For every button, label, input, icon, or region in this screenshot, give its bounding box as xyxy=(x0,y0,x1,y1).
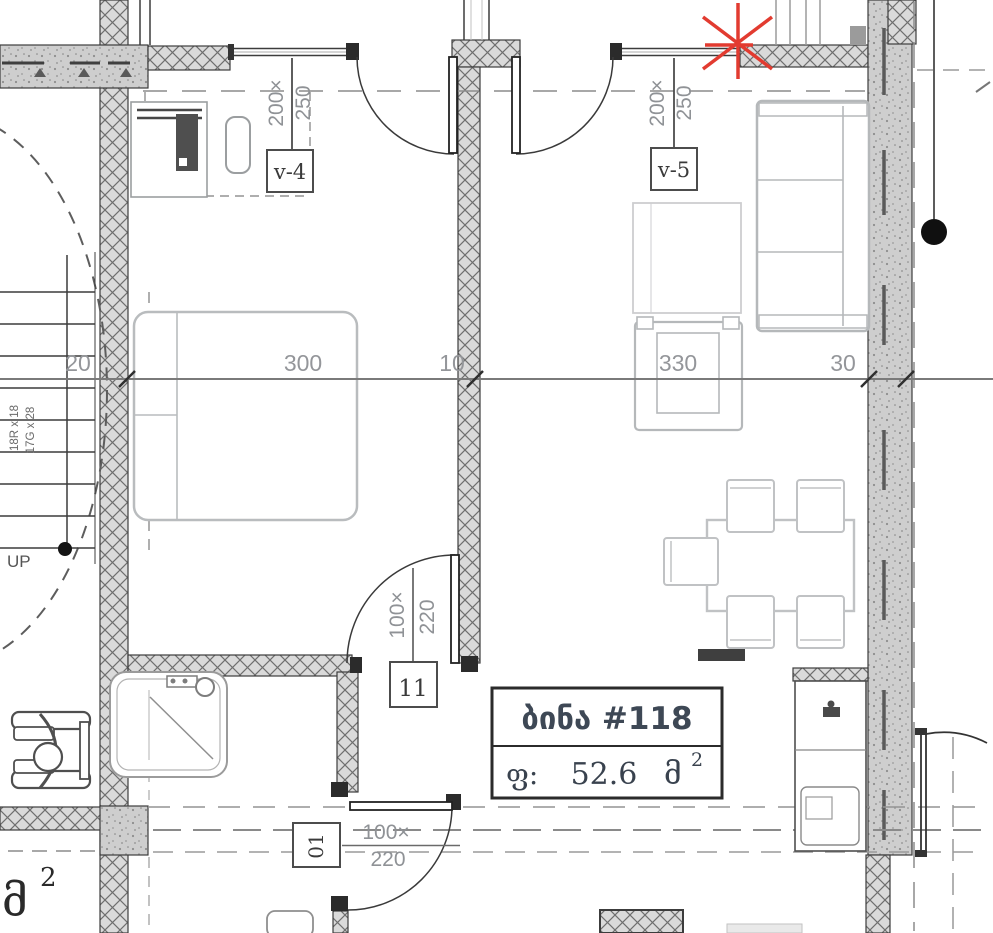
dim-10: 10 xyxy=(439,350,465,376)
door11-size-h: 220 xyxy=(416,599,439,634)
shower-tray xyxy=(110,672,227,777)
wheelchair-symbol xyxy=(12,712,90,788)
wall-bathroom-right xyxy=(337,672,358,792)
apartment-label: ბინა #118 ფ: 52.6 მ 2 xyxy=(492,688,722,798)
desk-chair xyxy=(226,117,250,173)
kitchen-wall-band xyxy=(793,668,868,681)
stair-direction-dot xyxy=(58,542,72,556)
v4-size-h: 250 xyxy=(292,85,315,120)
v5-size-h: 250 xyxy=(673,85,696,120)
stair-up-label: UP xyxy=(7,552,31,571)
reference-dot xyxy=(921,0,947,245)
door-tag-11: 100× 220 11 xyxy=(386,568,439,707)
door01-tag-label: 01 xyxy=(304,833,328,858)
window-tag-v5: 200× 250 v-5 xyxy=(646,58,697,190)
bed xyxy=(134,312,357,520)
door11-size-w: 100× xyxy=(386,591,409,638)
wall-bottom-center xyxy=(600,910,683,933)
wall-right-concrete xyxy=(868,0,912,855)
balcony-door xyxy=(915,728,987,857)
fixture-below xyxy=(267,911,313,933)
bedroom-furniture xyxy=(131,92,357,520)
stair-swing-dashed-arc xyxy=(0,113,107,667)
stair-note-2: 17G x 28 xyxy=(25,407,37,454)
v5-tag-label: v-5 xyxy=(657,158,690,182)
area-value: 52.6 xyxy=(571,757,638,792)
dim-330: 330 xyxy=(659,350,697,376)
door01-size-h: 220 xyxy=(370,848,405,871)
area-prefix: ფ: xyxy=(506,758,538,791)
wall-center-cap xyxy=(452,40,520,67)
dim-20: 20 xyxy=(65,350,91,376)
door-living xyxy=(512,57,613,154)
dining-set xyxy=(664,480,854,648)
corner-area-sup: 2 xyxy=(40,863,57,893)
v4-size-w: 200× xyxy=(265,79,288,126)
wall-below-door01 xyxy=(333,911,348,933)
corner-area-unit: მ xyxy=(2,876,28,927)
wall-top-hatch-a xyxy=(148,46,230,70)
floor-plan-svg: UP 18R x 18 17G x 28 xyxy=(0,0,993,933)
door01-size-w: 100× xyxy=(362,821,409,844)
dim-300: 300 xyxy=(284,350,322,376)
v4-tag-label: v-4 xyxy=(273,160,306,184)
dim-30: 30 xyxy=(830,350,856,376)
sofa xyxy=(757,101,869,331)
v5-size-w: 200× xyxy=(646,79,669,126)
wall-left-vertical xyxy=(100,0,128,933)
bathroom xyxy=(12,672,227,788)
window-v4-band xyxy=(228,43,359,60)
door-bedroom xyxy=(357,57,457,154)
tv-cabinet xyxy=(633,203,741,313)
pier-bottom-left xyxy=(100,806,148,855)
wall-bottom-right-strip xyxy=(866,855,890,933)
area-unit: მ xyxy=(664,757,682,792)
wall-top-hatch-b xyxy=(740,45,868,67)
door11-tag-label: 11 xyxy=(398,676,427,702)
desk xyxy=(131,102,207,197)
floor-plan: UP 18R x 18 17G x 28 xyxy=(0,0,993,933)
area-sup: 2 xyxy=(691,749,703,771)
wall-top-right-corner xyxy=(888,0,916,44)
window-tag-v4: 200× 250 v-4 xyxy=(265,58,315,192)
kitchen xyxy=(793,668,868,851)
wall-top-left-concrete xyxy=(0,45,148,88)
label-box-below xyxy=(727,924,802,933)
wall-bottom-left-band xyxy=(0,807,104,830)
apartment-title: ბინა #118 xyxy=(521,701,692,737)
upper-continuation-lines xyxy=(140,0,866,45)
stair-note-1: 18R x 18 xyxy=(9,405,21,451)
stairs: UP 18R x 18 17G x 28 xyxy=(0,252,95,571)
